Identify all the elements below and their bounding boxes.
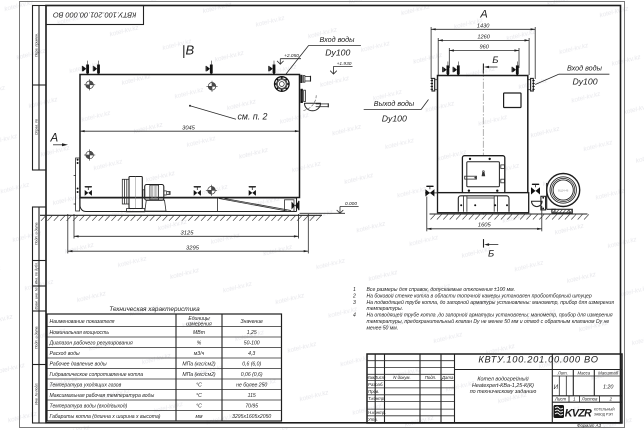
- svg-text:3: 3: [353, 300, 356, 306]
- svg-text:°С: °С: [196, 383, 202, 389]
- svg-text:1430: 1430: [477, 24, 490, 30]
- svg-text:Листов: Листов: [581, 397, 598, 402]
- svg-text:N докум.: N докум.: [393, 375, 410, 380]
- svg-text:На отводящей трубе котла ,до з: На отводящей трубе котла ,до запорной ар…: [367, 312, 613, 319]
- svg-text:1,25: 1,25: [247, 330, 257, 336]
- svg-text:Разраб.: Разраб.: [368, 382, 384, 387]
- svg-text:Диапазон рабочего регулировани: Диапазон рабочего регулирования: [49, 341, 133, 347]
- svg-text:1: 1: [353, 287, 356, 293]
- svg-text:2: 2: [352, 293, 356, 299]
- svg-text:не более 250: не более 250: [236, 383, 267, 389]
- svg-text:1:20: 1:20: [603, 385, 614, 391]
- svg-text:ЗАВОД РЭП: ЗАВОД РЭП: [594, 413, 613, 417]
- svg-text:Масштаб: Масштаб: [598, 371, 619, 376]
- svg-text:Перв. примен.: Перв. примен.: [35, 33, 39, 57]
- svg-text:4: 4: [353, 313, 356, 319]
- svg-text:На боковой стенке котла в обла: На боковой стенке котла в области топочн…: [367, 292, 592, 299]
- svg-text:Температура уходящих газов: Температура уходящих газов: [50, 383, 122, 389]
- svg-text:Взам. инв. №: Взам. инв. №: [35, 287, 39, 309]
- svg-text:Н.контр.: Н.контр.: [368, 410, 386, 415]
- svg-text:мм: мм: [196, 414, 203, 420]
- svg-text:Расход воды: Расход воды: [50, 351, 80, 357]
- svg-text:Номинальная мощность: Номинальная мощность: [50, 330, 110, 336]
- svg-text:Пров.: Пров.: [368, 389, 379, 394]
- svg-text:+1.930: +1.930: [337, 61, 352, 67]
- svg-text:Инв. № подл.: Инв. № подл.: [35, 383, 39, 405]
- svg-text:Все размеры для справок, допус: Все размеры для справок, допускаемые отк…: [367, 287, 516, 293]
- svg-text:°С: °С: [196, 404, 202, 410]
- svg-text:менее 50 мм.: менее 50 мм.: [367, 326, 399, 332]
- svg-text:Значение: Значение: [241, 319, 264, 325]
- svg-text:температуры.: температуры.: [367, 306, 404, 312]
- svg-text:Справ. №: Справ. №: [35, 119, 39, 135]
- svg-text:%: %: [197, 341, 202, 347]
- svg-text:Вход воды: Вход воды: [567, 64, 603, 73]
- svg-text:3295: 3295: [186, 245, 200, 251]
- svg-text:Рабочее давление воды: Рабочее давление воды: [50, 362, 107, 368]
- svg-text:+2.050: +2.050: [284, 53, 299, 59]
- svg-text:Техническая характеристика: Техническая характеристика: [109, 306, 200, 313]
- svg-text:Формат А3: Формат А3: [577, 423, 602, 428]
- svg-text:На подводящей трубе котла, д: На подводящей трубе котла, до запорной а…: [367, 299, 615, 306]
- svg-text:Подп. и дата: Подп. и дата: [35, 326, 39, 349]
- svg-text:Выход воды: Выход воды: [374, 99, 415, 108]
- svg-text:Наименование показателя: Наименование показателя: [50, 319, 115, 325]
- svg-text:Dy100: Dy100: [572, 76, 597, 86]
- svg-text:Б: Б: [492, 55, 498, 66]
- svg-text:Утв.: Утв.: [368, 417, 378, 422]
- svg-text:Максимальная рабочая температу: Максимальная рабочая температура воды: [50, 393, 155, 399]
- svg-text:Dy100: Dy100: [382, 114, 407, 124]
- svg-text:Лист: Лист: [373, 375, 385, 380]
- svg-text:МВт: МВт: [193, 330, 205, 336]
- svg-text:Dy100: Dy100: [325, 48, 350, 58]
- svg-text:Габариты котла (длинна х ширин: Габариты котла (длинна х ширина х высота…: [50, 414, 161, 420]
- svg-text:Вход воды: Вход воды: [320, 35, 356, 44]
- svg-text:м3/ч: м3/ч: [194, 351, 205, 357]
- svg-text:Т.контр.: Т.контр.: [368, 396, 385, 401]
- svg-text:Подп.: Подп.: [425, 375, 436, 380]
- svg-text:Дата: Дата: [441, 375, 454, 380]
- svg-text:1605: 1605: [478, 222, 492, 228]
- svg-text:Heatexpert-КВа-1,25-К(К): Heatexpert-КВа-1,25-К(К): [472, 383, 534, 389]
- svg-text:И: И: [554, 384, 559, 391]
- svg-text:3045: 3045: [182, 125, 195, 131]
- svg-text:Котел водогрейный: Котел водогрейный: [477, 376, 528, 383]
- svg-text:3125: 3125: [181, 231, 195, 237]
- svg-text:115: 115: [248, 393, 256, 399]
- svg-text:°С: °С: [196, 393, 202, 399]
- svg-text:KVZR: KVZR: [565, 407, 592, 419]
- svg-text:КВТУ.100.201.00.000 ВО: КВТУ.100.201.00.000 ВО: [53, 11, 137, 20]
- svg-text:0,6 (6,0): 0,6 (6,0): [242, 362, 261, 368]
- svg-text:Гидравлическое сопротивление к: Гидравлическое сопротивление котла: [50, 372, 144, 378]
- svg-text:Подп. и дата: Подп. и дата: [35, 222, 39, 245]
- svg-text:измерения: измерения: [186, 322, 212, 328]
- svg-text:Б: Б: [488, 249, 494, 260]
- svg-text:А: А: [479, 9, 487, 21]
- svg-text:КОТЕЛЬНЫЙ: КОТЕЛЬНЫЙ: [594, 408, 615, 412]
- svg-text:0,06 (0,6): 0,06 (0,6): [241, 372, 263, 378]
- svg-text:КВТУ.100.201.00.000 ВО: КВТУ.100.201.00.000 ВО: [478, 355, 598, 365]
- svg-text:960: 960: [479, 45, 489, 51]
- svg-text:МПа (кгс/см2): МПа (кгс/см2): [182, 372, 216, 378]
- svg-text:Масса: Масса: [577, 371, 590, 376]
- svg-text:Лит.: Лит.: [557, 371, 568, 376]
- svg-text:70/95: 70/95: [245, 404, 258, 410]
- svg-text:Инв. № дубл.: Инв. № дубл.: [35, 262, 39, 284]
- svg-text:Лист: Лист: [554, 397, 566, 402]
- svg-text:А: А: [50, 133, 59, 145]
- svg-text:Температура воды (вход/выход): Температура воды (вход/выход): [50, 404, 128, 410]
- svg-text:3295х1605х2050: 3295х1605х2050: [232, 414, 271, 420]
- svg-text:50-100: 50-100: [244, 341, 260, 347]
- svg-text:температуры, предохранительный: температуры, предохранительный клапан Dу…: [367, 318, 610, 325]
- svg-text:по техническому заданию: по техническому заданию: [470, 389, 537, 395]
- svg-text:В: В: [186, 43, 195, 58]
- svg-text:1260: 1260: [477, 35, 490, 41]
- svg-text:4,3: 4,3: [248, 351, 255, 357]
- svg-text:МПа (кгс/см2): МПа (кгс/см2): [182, 362, 216, 368]
- svg-text:см. п. 2: см. п. 2: [238, 112, 268, 122]
- svg-text:0.000: 0.000: [345, 201, 357, 207]
- svg-text:ВЦ14-46: ВЦ14-46: [558, 189, 569, 193]
